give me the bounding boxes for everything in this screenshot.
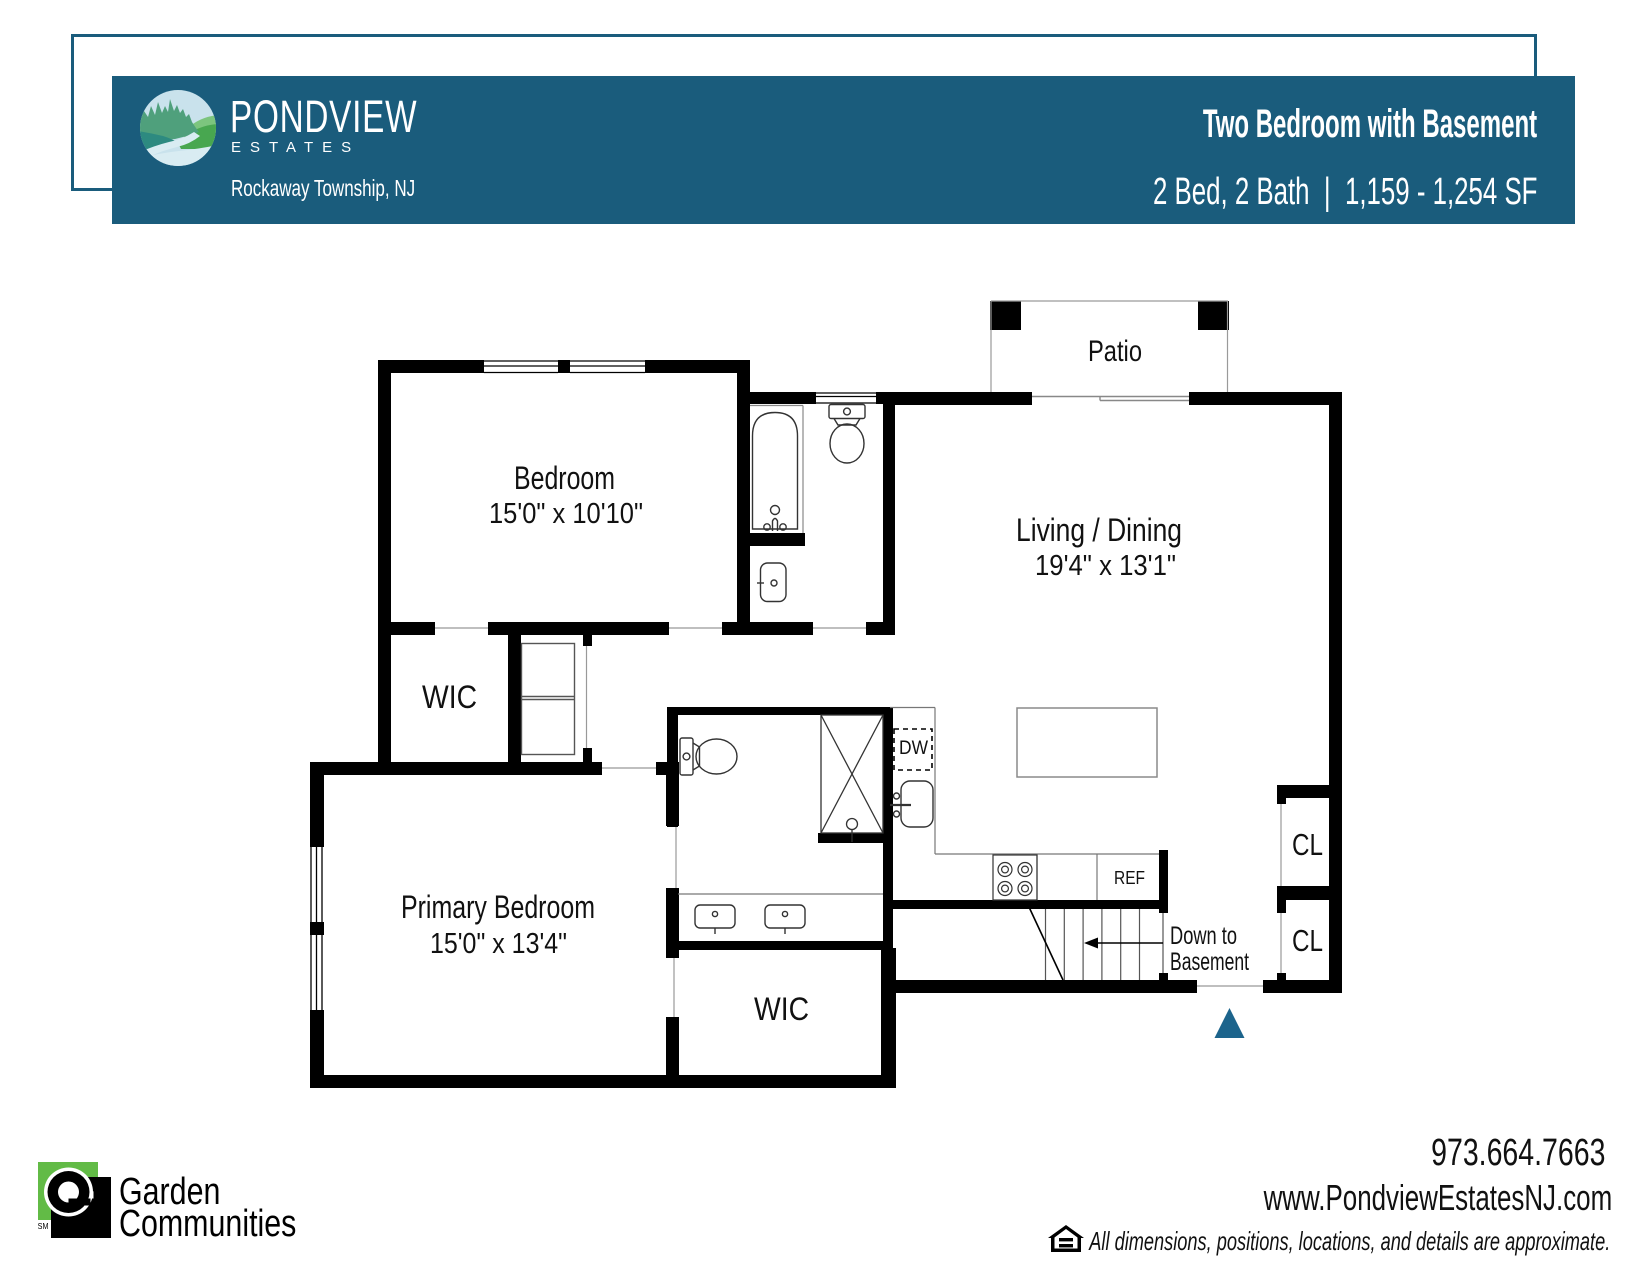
- svg-text:CL: CL: [1292, 923, 1323, 958]
- svg-text:REF: REF: [1114, 868, 1145, 888]
- svg-text:19'4" x 13'1": 19'4" x 13'1": [1035, 550, 1176, 582]
- svg-text:WIC: WIC: [422, 679, 477, 715]
- svg-text:15'0" x 13'4": 15'0" x 13'4": [430, 928, 567, 960]
- svg-text:15'0" x 10'10": 15'0" x 10'10": [489, 498, 643, 530]
- svg-text:WIC: WIC: [754, 991, 809, 1027]
- svg-text:DW: DW: [899, 738, 928, 759]
- svg-text:Basement: Basement: [1170, 948, 1249, 976]
- svg-text:CL: CL: [1292, 827, 1323, 862]
- svg-text:Primary Bedroom: Primary Bedroom: [401, 889, 595, 925]
- svg-text:Living / Dining: Living / Dining: [1016, 512, 1182, 548]
- svg-text:Bedroom: Bedroom: [514, 460, 615, 496]
- svg-text:Down to: Down to: [1170, 922, 1237, 950]
- svg-text:Patio: Patio: [1088, 335, 1142, 368]
- svg-text:SM: SM: [38, 1222, 49, 1231]
